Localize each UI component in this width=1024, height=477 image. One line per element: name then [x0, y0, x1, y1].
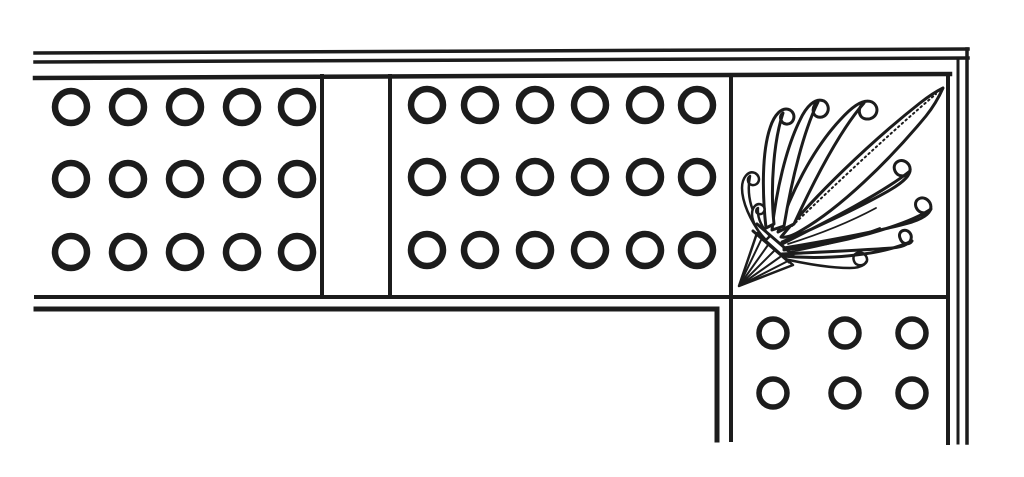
ring: [574, 89, 606, 121]
ring: [898, 379, 926, 407]
ornament-engraving-canvas: [0, 0, 1024, 477]
ring: [226, 236, 258, 268]
vertical-band-rings: [759, 319, 926, 407]
ring: [112, 236, 144, 268]
ring: [629, 234, 661, 266]
ring: [759, 379, 787, 407]
ring: [629, 161, 661, 193]
ring: [519, 234, 551, 266]
top-rule-outer-a: [35, 49, 968, 53]
ring: [226, 163, 258, 195]
ring: [519, 161, 551, 193]
ring: [898, 319, 926, 347]
ring: [464, 234, 496, 266]
ring: [169, 91, 201, 123]
ring: [519, 89, 551, 121]
ring: [55, 91, 87, 123]
ring: [464, 161, 496, 193]
left-panel-rings: [55, 91, 313, 268]
ring: [831, 379, 859, 407]
ring: [411, 89, 443, 121]
top-rule-inner: [35, 74, 950, 78]
ring: [681, 234, 713, 266]
ring: [112, 91, 144, 123]
ring: [574, 234, 606, 266]
ring: [831, 319, 859, 347]
middle-panel-rings: [411, 89, 713, 266]
ring: [464, 89, 496, 121]
ring: [112, 163, 144, 195]
ring: [281, 236, 313, 268]
ring: [226, 91, 258, 123]
ring: [574, 161, 606, 193]
ring: [169, 163, 201, 195]
engraving-page: [0, 0, 1024, 477]
ring: [681, 161, 713, 193]
palmette-ornament: [739, 88, 943, 286]
frieze-bottom-lower-rule-and-band-left-edge: [36, 309, 717, 440]
ring: [411, 234, 443, 266]
ring: [281, 163, 313, 195]
ring: [281, 91, 313, 123]
top-rule-outer-b: [35, 58, 968, 62]
ring: [759, 319, 787, 347]
ring: [629, 89, 661, 121]
ring: [55, 163, 87, 195]
ring: [411, 161, 443, 193]
ring: [55, 236, 87, 268]
ring: [681, 89, 713, 121]
ring: [169, 236, 201, 268]
